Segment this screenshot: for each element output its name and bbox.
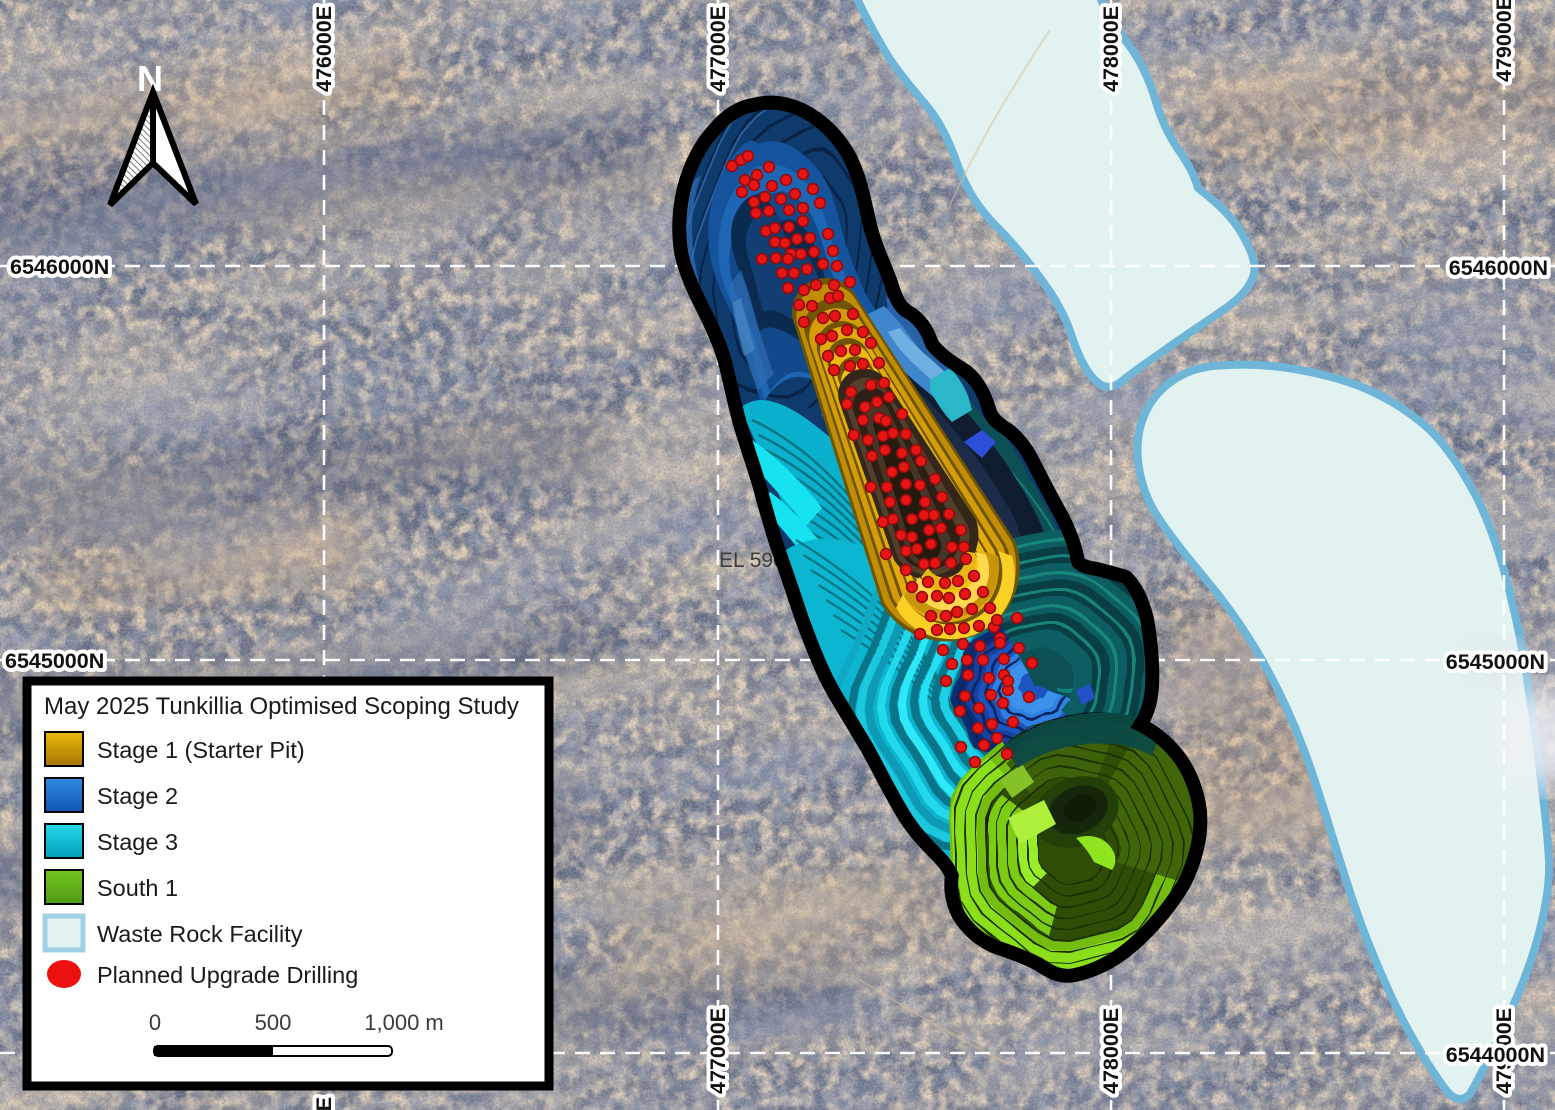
svg-text:500: 500 (255, 1010, 292, 1035)
svg-text:May 2025 Tunkillia Optimised S: May 2025 Tunkillia Optimised Scoping Stu… (44, 693, 519, 720)
svg-text:Stage 3: Stage 3 (97, 829, 178, 855)
svg-text:476000E: 476000E (312, 1097, 336, 1110)
svg-text:477000E: 477000E (706, 6, 730, 92)
svg-text:0: 0 (149, 1010, 161, 1035)
svg-text:6546000N: 6546000N (10, 255, 109, 279)
svg-text:Planned Upgrade Drilling: Planned Upgrade Drilling (97, 962, 358, 988)
svg-text:South 1: South 1 (97, 875, 178, 901)
svg-text:6545000N: 6545000N (5, 649, 104, 673)
svg-text:476000E: 476000E (312, 6, 336, 92)
svg-text:Waste Rock Facility: Waste Rock Facility (97, 921, 303, 947)
svg-text:Stage 1 (Starter Pit): Stage 1 (Starter Pit) (97, 737, 305, 763)
svg-text:479000E: 479000E (1492, 0, 1516, 82)
svg-text:477000E: 477000E (706, 1008, 730, 1094)
svg-text:6546000N: 6546000N (1449, 256, 1548, 280)
svg-text:478000E: 478000E (1099, 6, 1123, 92)
svg-text:Stage 2: Stage 2 (97, 783, 178, 809)
svg-text:1,000 m: 1,000 m (364, 1010, 444, 1035)
svg-text:478000E: 478000E (1099, 1008, 1123, 1094)
svg-text:6545000N: 6545000N (1446, 650, 1545, 674)
svg-text:6544000N: 6544000N (1446, 1043, 1545, 1067)
